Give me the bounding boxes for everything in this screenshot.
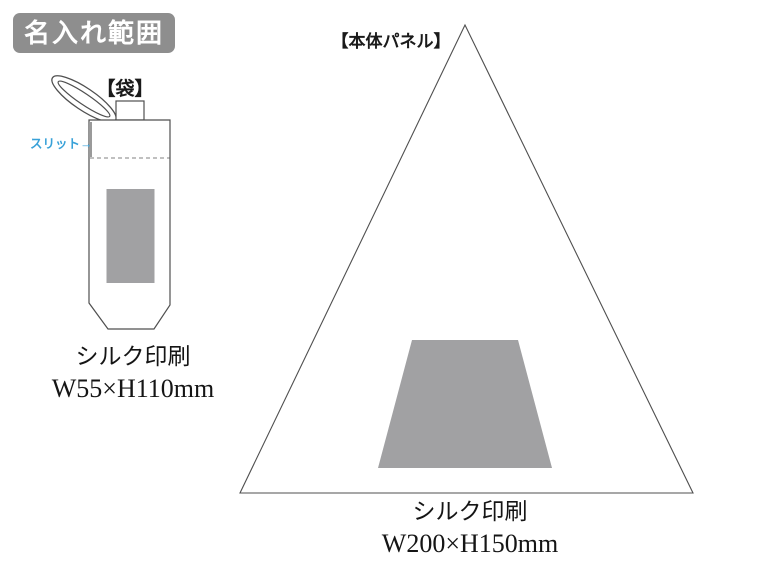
imprint-range-badge-label: 名入れ範囲: [24, 18, 164, 48]
imprint-area-diagram: 名入れ範囲 【袋】 【本体パネル】 スリット→ シルク印刷 W55×H110mm…: [0, 0, 760, 570]
bag-print-method: シルク印刷: [33, 341, 233, 372]
imprint-range-badge: 名入れ範囲: [13, 13, 175, 53]
panel-print-size: W200×H150mm: [360, 527, 580, 560]
bag-tab: [116, 101, 144, 120]
bag-print-size: W55×H110mm: [33, 372, 233, 405]
panel-drawing: [240, 25, 693, 493]
panel-print-method: シルク印刷: [360, 496, 580, 527]
slit-annotation: スリット→: [30, 133, 93, 152]
bag-print-info: シルク印刷 W55×H110mm: [33, 341, 233, 405]
panel-section-title: 【本体パネル】: [331, 27, 451, 52]
bag-drawing: [46, 69, 170, 329]
panel-print-info: シルク印刷 W200×H150mm: [360, 496, 580, 560]
bag-print-area: [107, 189, 155, 283]
bag-section-title: 【袋】: [75, 74, 175, 101]
